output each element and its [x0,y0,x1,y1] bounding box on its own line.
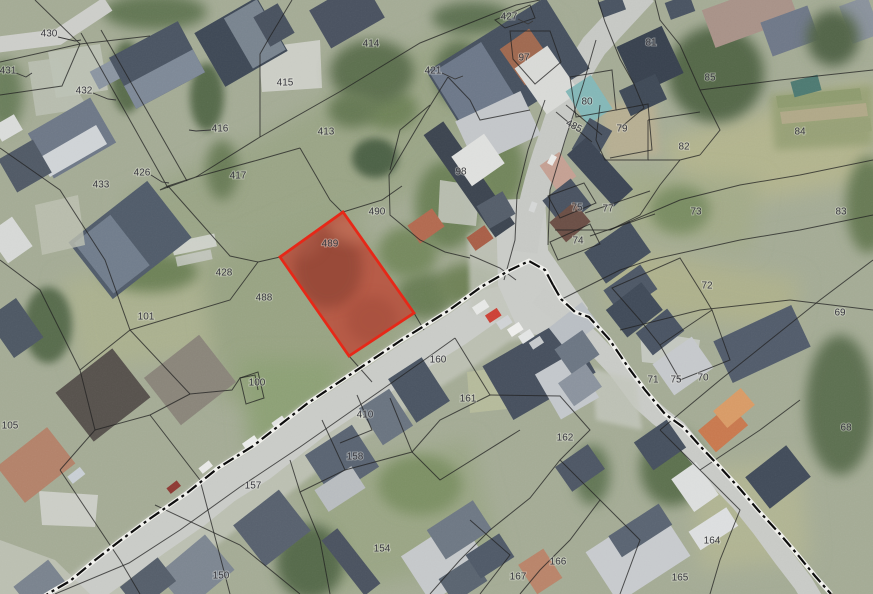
svg-text:427: 427 [501,12,518,23]
svg-text:490: 490 [369,207,386,218]
svg-text:81: 81 [645,38,657,49]
svg-text:413: 413 [318,127,335,138]
svg-text:416: 416 [212,124,229,135]
svg-text:165: 165 [672,573,689,584]
svg-text:158: 158 [347,452,364,463]
svg-text:430: 430 [41,29,58,40]
svg-text:489: 489 [322,239,339,250]
svg-text:77: 77 [602,204,614,215]
svg-text:82: 82 [678,142,690,153]
svg-text:69: 69 [834,308,846,319]
svg-text:432: 432 [76,86,93,97]
svg-text:100: 100 [249,378,266,389]
svg-text:75: 75 [571,203,583,214]
svg-text:160: 160 [430,355,447,366]
svg-text:97: 97 [518,53,530,64]
svg-text:164: 164 [704,536,721,547]
svg-text:68: 68 [840,423,852,434]
svg-text:75: 75 [670,375,682,386]
svg-text:161: 161 [460,394,477,405]
svg-text:428: 428 [216,268,233,279]
svg-text:166: 166 [550,557,567,568]
svg-text:415: 415 [277,78,294,89]
svg-text:150: 150 [213,571,230,582]
svg-text:421: 421 [425,66,442,77]
svg-text:167: 167 [510,572,527,583]
svg-text:105: 105 [2,421,19,432]
svg-text:84: 84 [794,127,806,138]
svg-text:80: 80 [581,97,593,108]
svg-text:74: 74 [572,236,584,247]
svg-text:157: 157 [245,481,262,492]
svg-text:83: 83 [835,207,847,218]
svg-text:73: 73 [690,207,702,218]
svg-text:431: 431 [0,66,17,77]
svg-text:414: 414 [363,39,380,50]
svg-text:85: 85 [704,73,716,84]
svg-text:426: 426 [134,168,151,179]
svg-text:410: 410 [357,410,374,421]
svg-text:79: 79 [616,124,628,135]
svg-text:154: 154 [374,544,391,555]
svg-text:72: 72 [701,281,713,292]
svg-text:488: 488 [256,293,273,304]
svg-text:433: 433 [93,180,110,191]
svg-text:101: 101 [138,312,155,323]
svg-text:70: 70 [697,373,709,384]
svg-text:98: 98 [455,167,467,178]
svg-text:71: 71 [647,375,659,386]
svg-text:162: 162 [557,433,574,444]
svg-text:417: 417 [230,171,247,182]
